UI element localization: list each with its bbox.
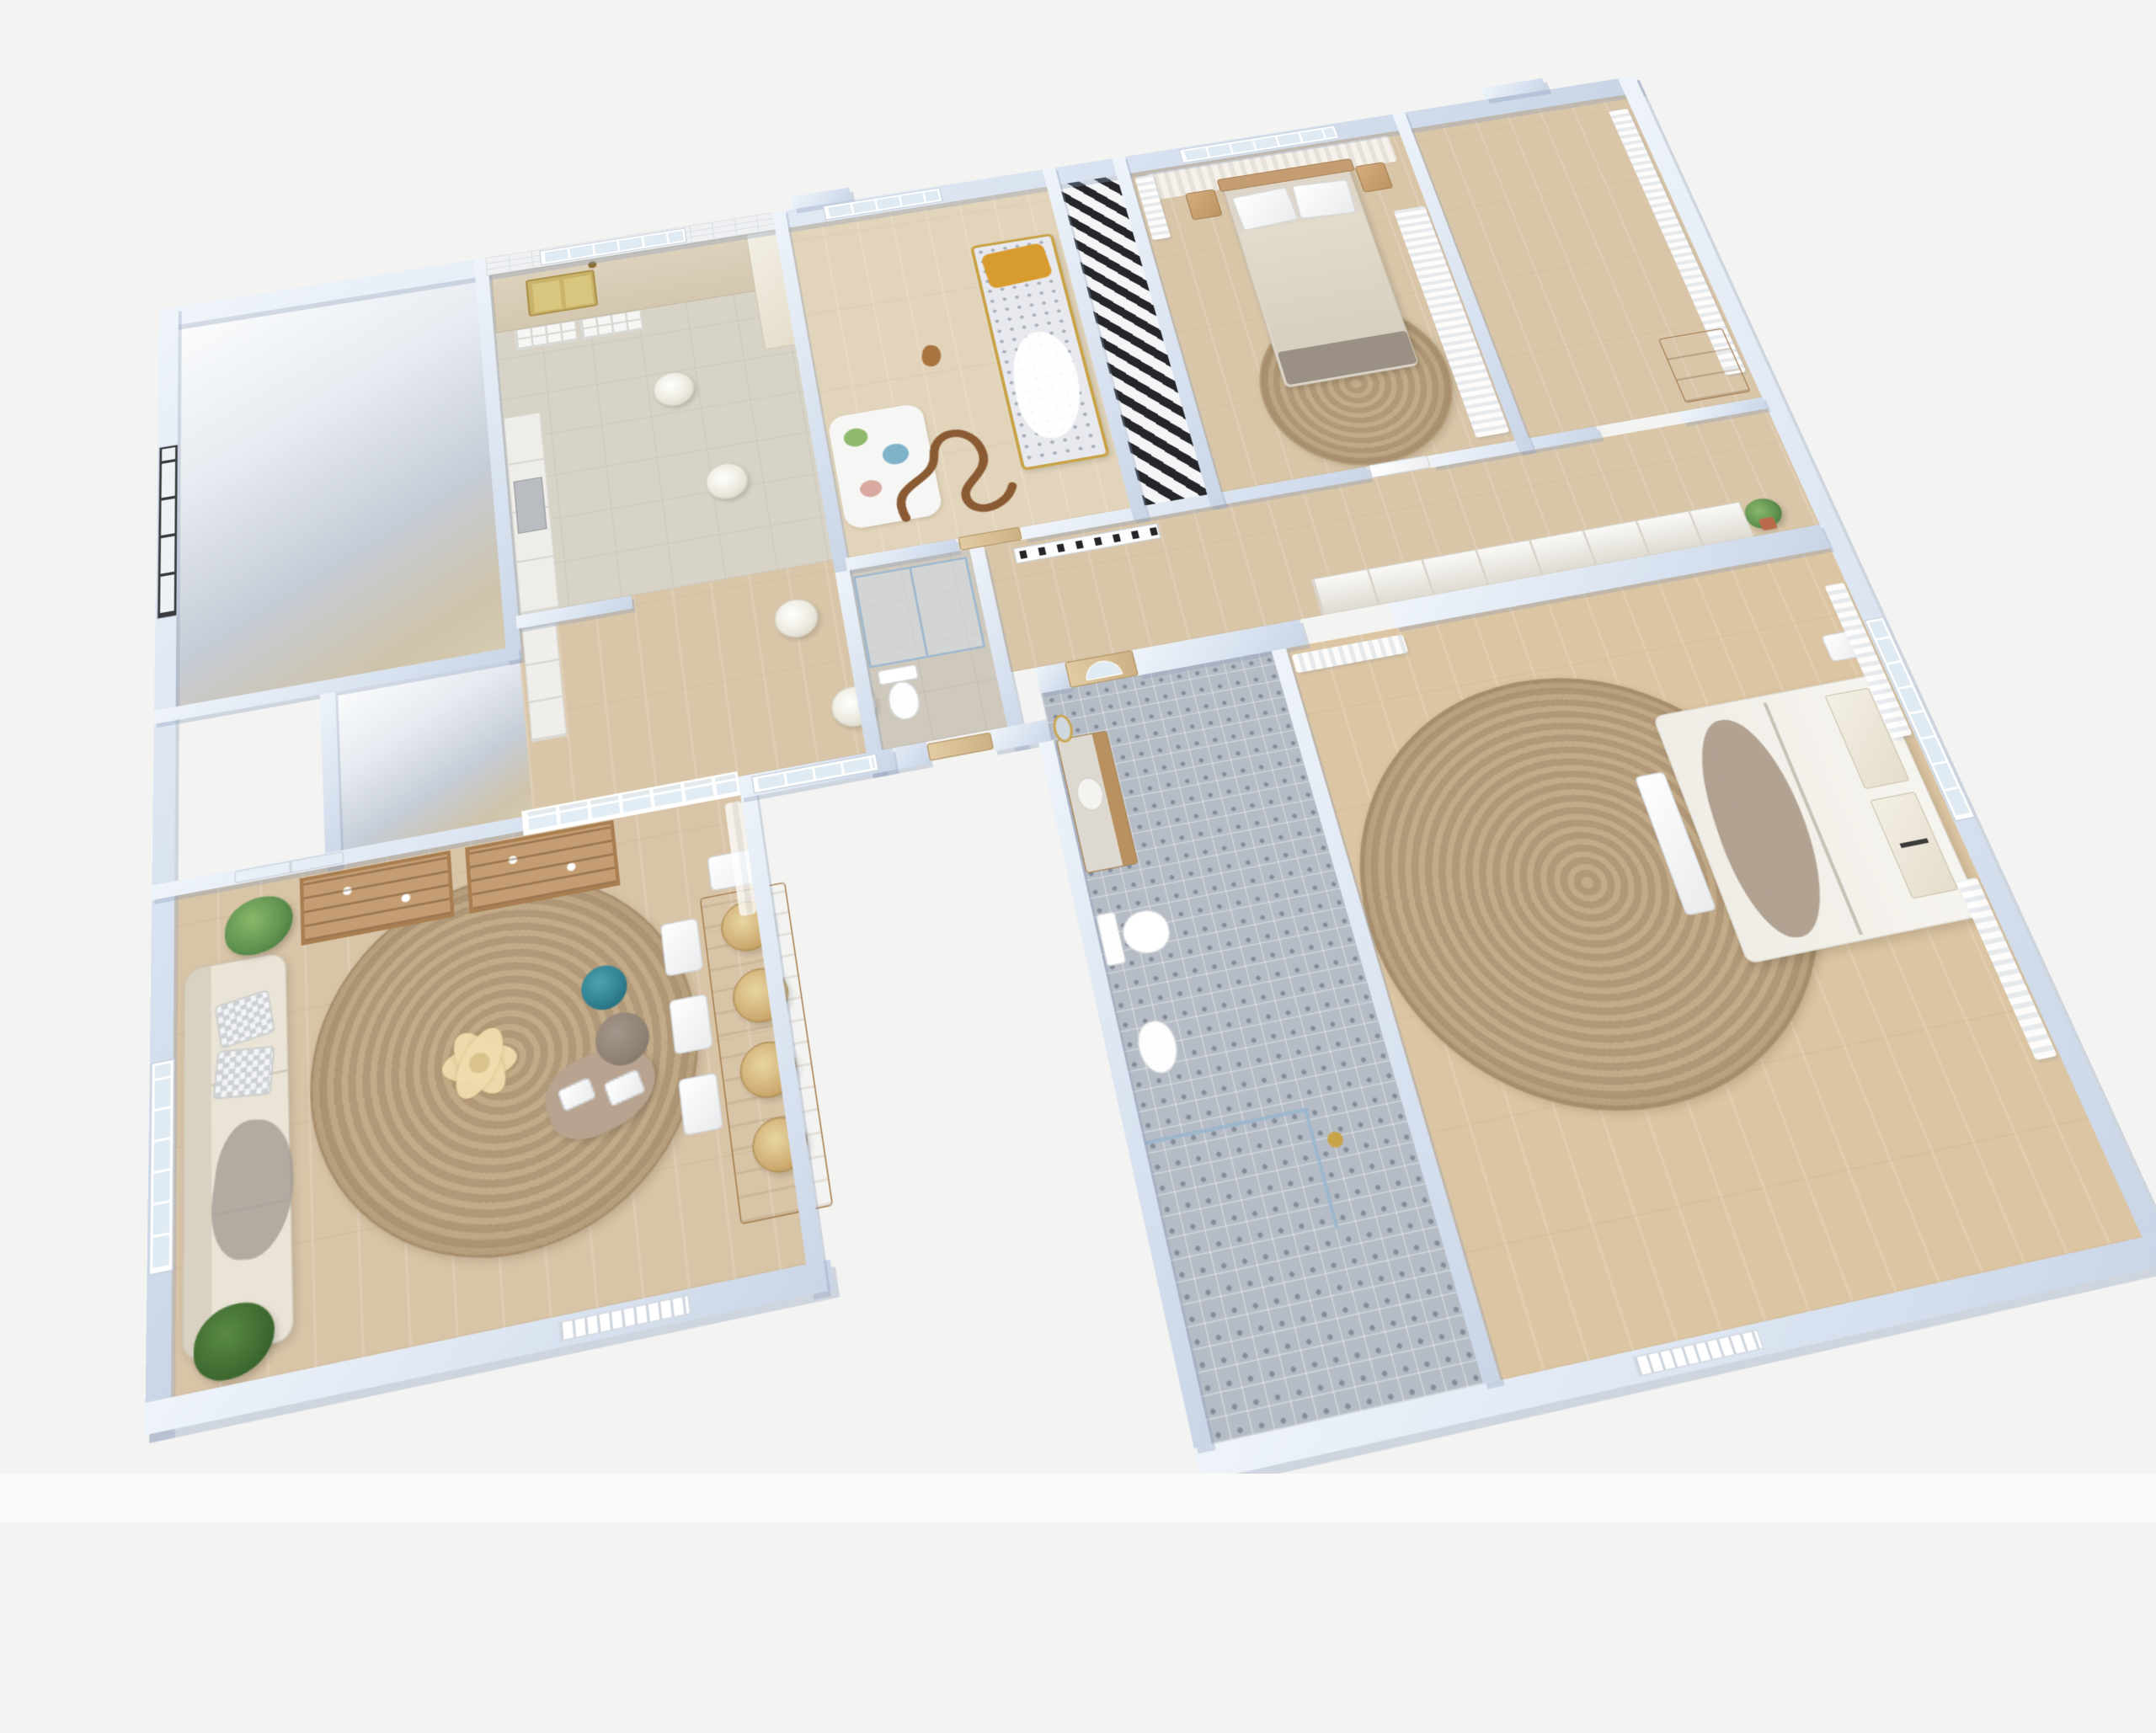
faucet (588, 261, 597, 269)
dining-chair (660, 918, 704, 977)
check-cushion (213, 1046, 275, 1100)
tray (603, 1069, 646, 1107)
brass-sink (526, 269, 599, 317)
sink-bowl (563, 275, 594, 307)
living-room-window (150, 1060, 173, 1274)
floor-plan-scene (0, 0, 2156, 1522)
dining-chair (678, 1072, 723, 1136)
page: { "scene": { "title": "3D floor plan ren… (0, 0, 2156, 1522)
glass-divider (910, 568, 929, 656)
flower-coffee-table (398, 975, 563, 1155)
mat-blob (842, 427, 869, 449)
bed-pillow (1292, 179, 1357, 219)
vanity-basin (1074, 776, 1107, 813)
books (557, 1077, 596, 1112)
arch-glazing (1083, 658, 1123, 680)
page-bottom-strip (0, 1474, 2156, 1522)
dark-frame-window (157, 445, 178, 618)
sink-bowl (532, 280, 563, 312)
empty-room-floor (176, 278, 506, 707)
appliance (514, 477, 547, 534)
pillow-stripe (1900, 838, 1929, 848)
dining-chair (669, 994, 713, 1055)
mustard-pillow (980, 243, 1054, 290)
